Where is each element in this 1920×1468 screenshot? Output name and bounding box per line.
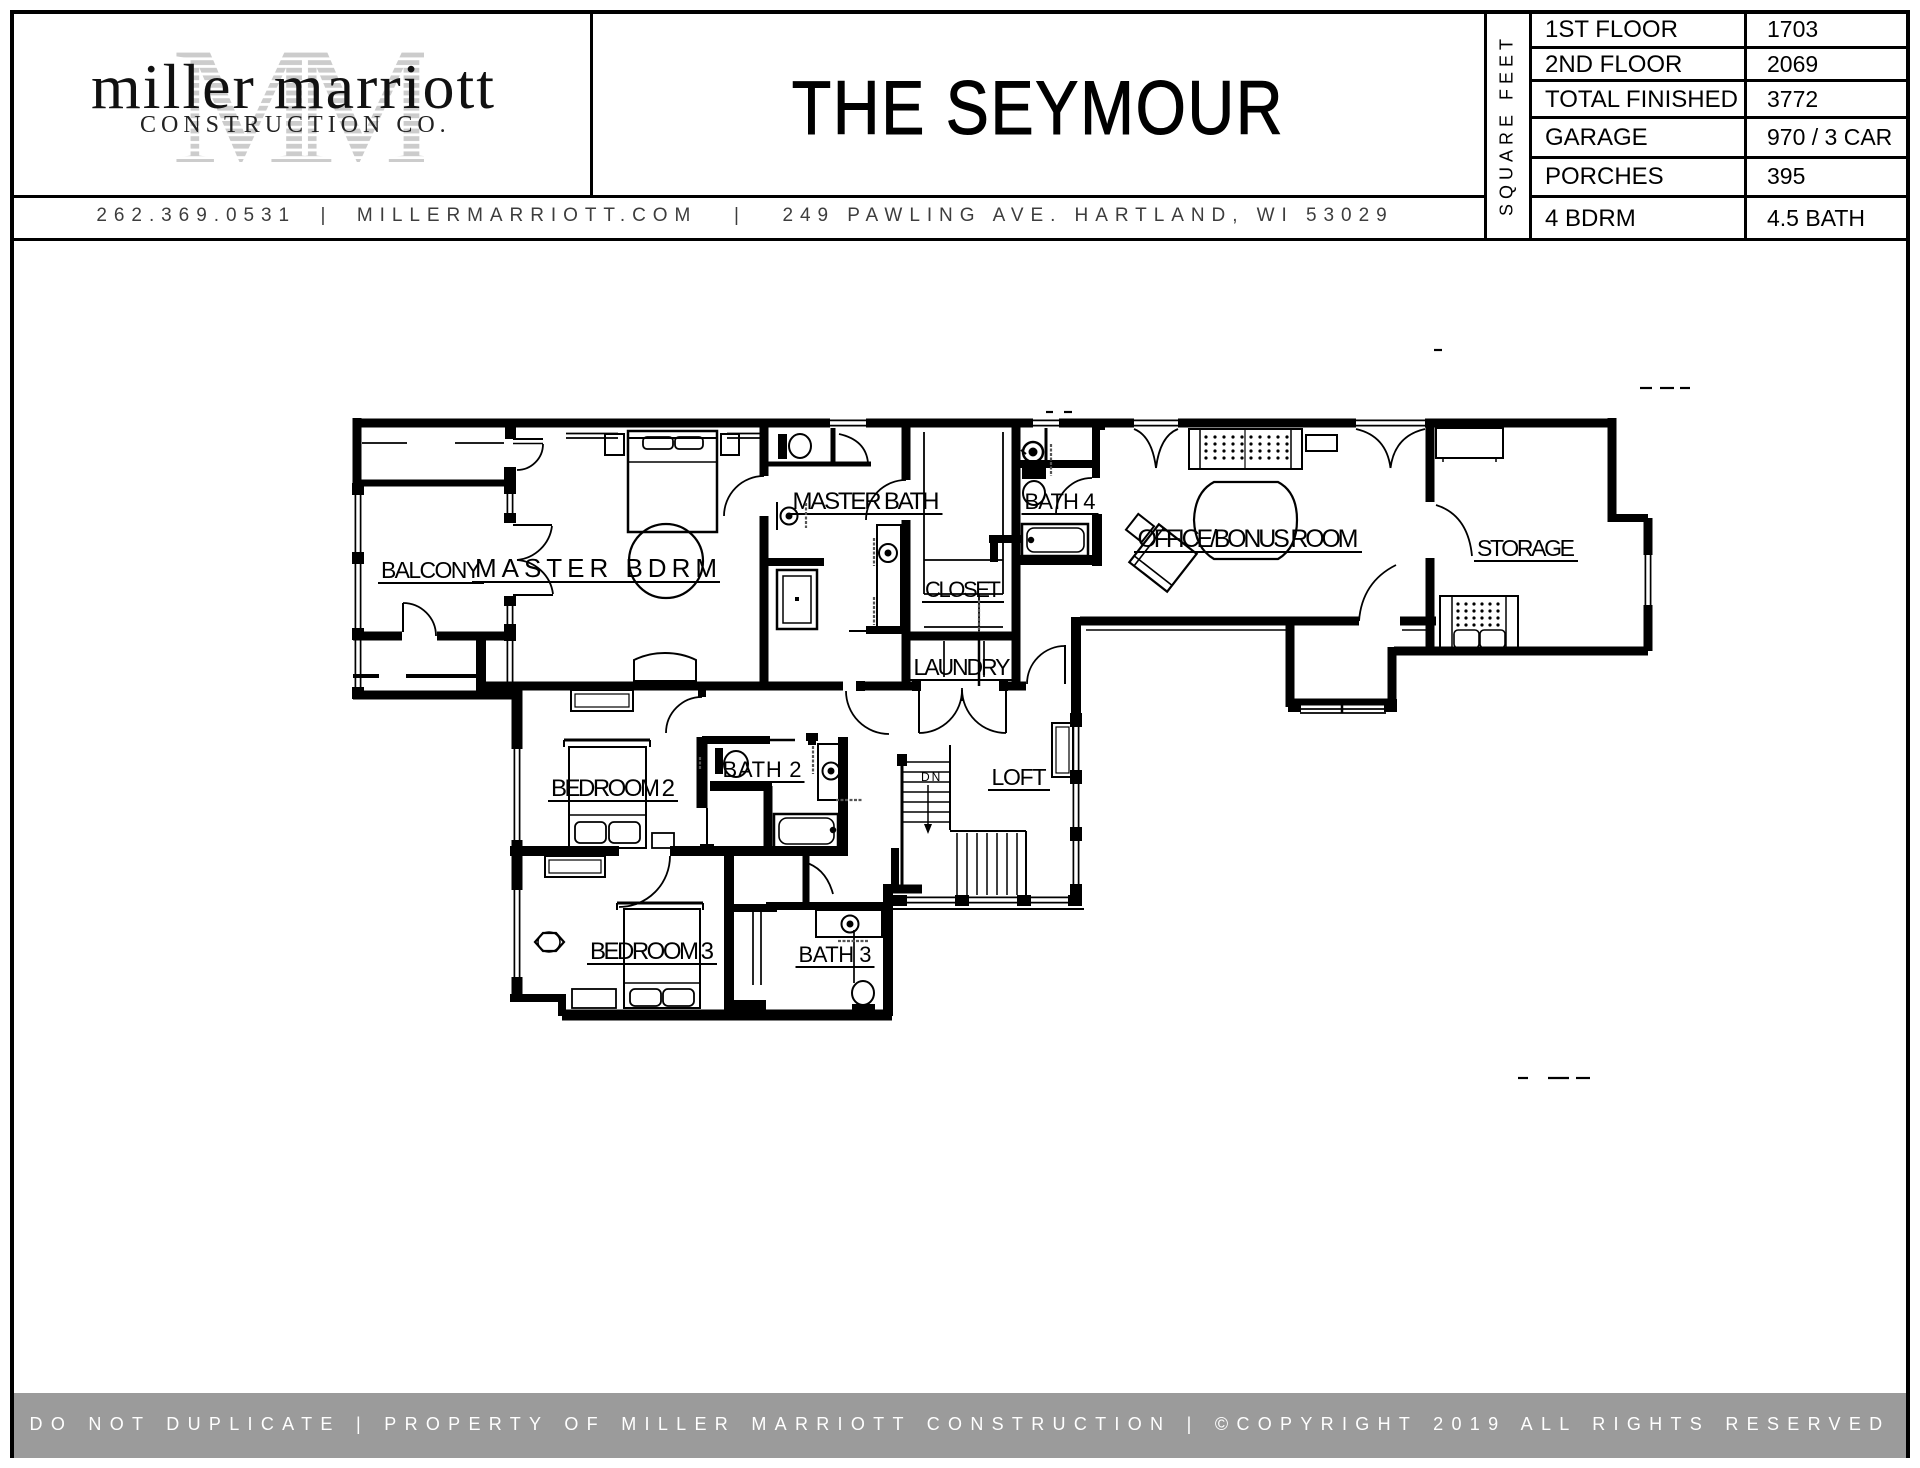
svg-text:MASTER BATH: MASTER BATH (793, 488, 940, 515)
svg-text:BATH 2: BATH 2 (723, 757, 802, 782)
svg-text:DN: DN (921, 770, 942, 784)
svg-text:BEDROOM 2: BEDROOM 2 (551, 775, 675, 802)
svg-text:LAUNDRY: LAUNDRY (914, 654, 1011, 680)
svg-text:BATH 4: BATH 4 (1025, 489, 1096, 514)
svg-text:MASTER BDRM: MASTER BDRM (475, 553, 717, 583)
svg-text:STORAGE: STORAGE (1477, 535, 1575, 561)
svg-text:CLOSET: CLOSET (925, 577, 1001, 602)
svg-text:BEDROOM 3: BEDROOM 3 (590, 938, 714, 965)
svg-text:BATH 3: BATH 3 (799, 942, 872, 967)
svg-text:OFFICE/BONUS ROOM: OFFICE/BONUS ROOM (1138, 525, 1359, 553)
svg-text:LOFT: LOFT (992, 764, 1047, 790)
svg-text:BALCONY: BALCONY (381, 557, 481, 583)
